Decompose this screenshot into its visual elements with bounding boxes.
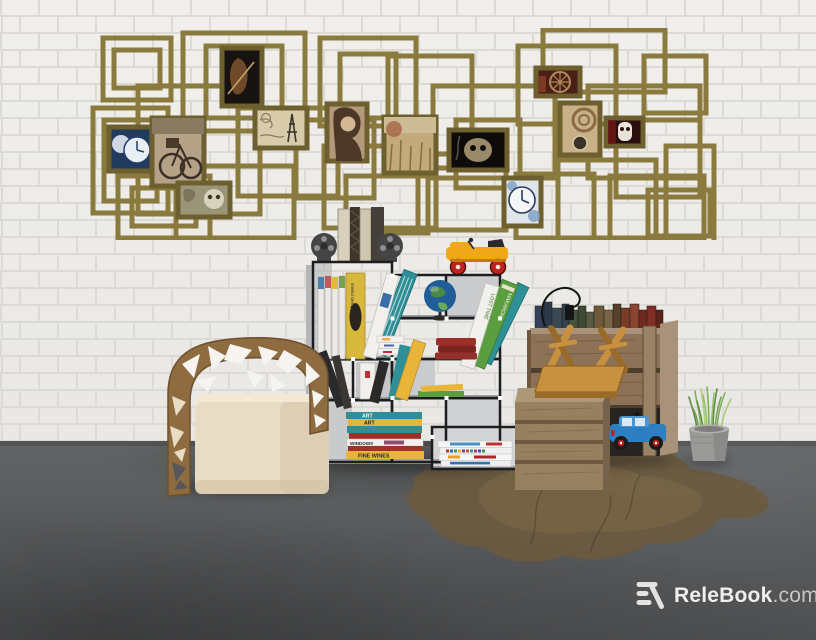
crate-group xyxy=(515,280,680,495)
watermark-brand: ReleBook xyxy=(674,584,772,607)
art-label-1: ART xyxy=(362,414,373,420)
relebook-watermark: ReleBook.com xyxy=(636,581,816,610)
art-book-stack: ART ART WINDOWS FINE WINES xyxy=(346,412,424,460)
photo-paris-map xyxy=(255,108,307,148)
grass xyxy=(689,387,731,429)
photo-bicycle xyxy=(152,118,204,186)
photo-woman-portrait xyxy=(327,104,367,161)
windows-label: WINDOWS xyxy=(350,441,373,446)
relebook-logo-icon xyxy=(636,581,666,610)
wooden-cutout-armchair xyxy=(160,330,335,500)
yellow-toy-car xyxy=(446,238,508,275)
art-label-2: ART xyxy=(364,421,375,427)
film-reel-bookends-with-books xyxy=(311,207,403,262)
red-book-stack xyxy=(435,338,477,360)
photo-grim-figure xyxy=(222,48,262,106)
photo-rope-compass xyxy=(560,103,600,155)
striped-book-stack xyxy=(438,441,512,467)
bucket-pot xyxy=(689,425,729,462)
potted-grass-plant xyxy=(683,385,738,465)
scene-3d-render: Interior Design xyxy=(0,0,816,640)
cushion xyxy=(195,394,329,494)
photo-dark-skull xyxy=(449,130,507,170)
wooden-slat-box xyxy=(515,388,610,490)
photo-wagon-wheel xyxy=(536,68,580,96)
interior-design-label: Interior Design xyxy=(350,283,355,311)
photo-punisher-skull xyxy=(606,118,643,146)
fine-wines-label: FINE WINES xyxy=(358,454,390,460)
photo-wheat-field xyxy=(384,117,436,173)
watermark-suffix: .com xyxy=(772,584,816,607)
photo-moon-clock xyxy=(109,127,156,171)
photo-skull-etching xyxy=(178,183,230,217)
